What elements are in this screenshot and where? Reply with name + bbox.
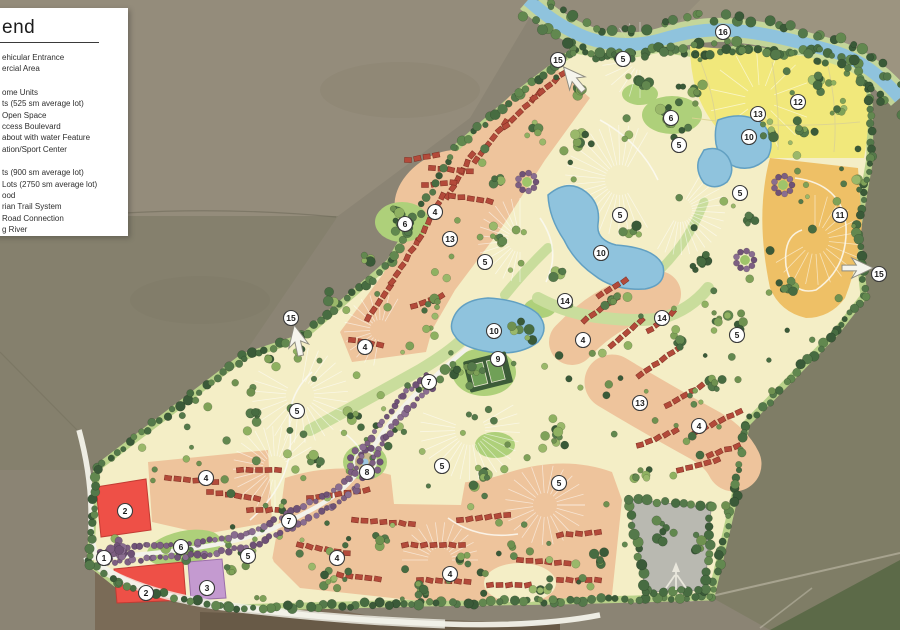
- map-marker-2: 2: [118, 504, 133, 519]
- field-mottle: [130, 276, 270, 324]
- legend-item: Lots (2750 sm average lot): [2, 179, 128, 190]
- map-marker-5: 5: [733, 186, 748, 201]
- map-marker-4: 4: [330, 551, 345, 566]
- map-marker-8: 8: [360, 465, 375, 480]
- map-marker-6: 6: [174, 540, 189, 555]
- legend-item: g River: [2, 224, 128, 235]
- site-plan-map: 1223444444455555555556667789101010111213…: [0, 0, 900, 630]
- svg-text:14: 14: [657, 313, 667, 323]
- legend-item: about with water Feature: [2, 132, 128, 143]
- svg-text:2: 2: [144, 588, 149, 598]
- map-marker-4: 4: [692, 419, 707, 434]
- svg-text:6: 6: [179, 542, 184, 552]
- svg-text:7: 7: [287, 516, 292, 526]
- map-marker-5: 5: [478, 255, 493, 270]
- map-marker-5: 5: [290, 404, 305, 419]
- legend-item: Road Connection: [2, 213, 128, 224]
- map-marker-13: 13: [443, 232, 458, 247]
- map-marker-10: 10: [594, 246, 609, 261]
- svg-text:5: 5: [621, 54, 626, 64]
- legend-title: end: [2, 17, 128, 39]
- svg-text:4: 4: [448, 569, 453, 579]
- map-marker-4: 4: [443, 567, 458, 582]
- map-marker-15: 15: [872, 267, 887, 282]
- map-marker-5: 5: [616, 52, 631, 67]
- svg-text:10: 10: [744, 132, 754, 142]
- svg-text:7: 7: [427, 377, 432, 387]
- svg-text:10: 10: [489, 326, 499, 336]
- svg-text:4: 4: [363, 342, 368, 352]
- map-marker-10: 10: [487, 324, 502, 339]
- svg-text:1: 1: [102, 553, 107, 563]
- map-marker-6: 6: [664, 111, 679, 126]
- svg-text:16: 16: [718, 27, 728, 37]
- legend-group: ome Unitsts (525 sm average lot)Open Spa…: [2, 87, 128, 155]
- svg-text:4: 4: [204, 473, 209, 483]
- svg-text:5: 5: [440, 461, 445, 471]
- legend-item: rian Trail System: [2, 201, 128, 212]
- map-marker-13: 13: [751, 107, 766, 122]
- map-marker-5: 5: [613, 208, 628, 223]
- map-marker-10: 10: [742, 130, 757, 145]
- map-marker-14: 14: [655, 311, 670, 326]
- map-marker-14: 14: [558, 294, 573, 309]
- svg-text:14: 14: [560, 296, 570, 306]
- svg-text:6: 6: [403, 219, 408, 229]
- svg-text:5: 5: [735, 330, 740, 340]
- map-marker-3: 3: [200, 581, 215, 596]
- svg-text:15: 15: [874, 269, 884, 279]
- field-mottle: [320, 62, 480, 118]
- legend-group: ehicular Entranceercial Area: [2, 52, 128, 75]
- svg-text:4: 4: [335, 553, 340, 563]
- legend-item: ts (525 sm average lot): [2, 98, 128, 109]
- map-marker-16: 16: [716, 25, 731, 40]
- svg-text:5: 5: [677, 140, 682, 150]
- svg-text:8: 8: [365, 467, 370, 477]
- svg-text:4: 4: [581, 335, 586, 345]
- svg-text:5: 5: [246, 551, 251, 561]
- map-marker-5: 5: [241, 549, 256, 564]
- svg-text:5: 5: [483, 257, 488, 267]
- map-marker-4: 4: [358, 340, 373, 355]
- svg-text:5: 5: [738, 188, 743, 198]
- map-marker-2: 2: [139, 586, 154, 601]
- map-marker-5: 5: [672, 138, 687, 153]
- svg-text:15: 15: [286, 313, 296, 323]
- legend-item: Open Space: [2, 110, 128, 121]
- map-marker-11: 11: [833, 208, 848, 223]
- map-marker-1: 1: [97, 551, 112, 566]
- pond: [698, 149, 732, 187]
- svg-text:5: 5: [618, 210, 623, 220]
- svg-text:13: 13: [753, 109, 763, 119]
- svg-text:13: 13: [445, 234, 455, 244]
- map-marker-13: 13: [633, 396, 648, 411]
- map-marker-4: 4: [428, 205, 443, 220]
- svg-text:4: 4: [697, 421, 702, 431]
- map-marker-4: 4: [199, 471, 214, 486]
- map-marker-5: 5: [435, 459, 450, 474]
- svg-text:12: 12: [793, 97, 803, 107]
- map-marker-7: 7: [282, 514, 297, 529]
- map-marker-4: 4: [576, 333, 591, 348]
- svg-text:3: 3: [205, 583, 210, 593]
- map-marker-12: 12: [791, 95, 806, 110]
- legend-item: ts (900 sm average lot): [2, 167, 128, 178]
- legend-group: ts (900 sm average lot)Lots (2750 sm ave…: [2, 167, 128, 235]
- svg-text:9: 9: [496, 354, 501, 364]
- svg-text:11: 11: [836, 210, 845, 220]
- legend-item: ation/Sport Center: [2, 144, 128, 155]
- legend-item: ccess Boulevard: [2, 121, 128, 132]
- legend-item: ood: [2, 190, 128, 201]
- legend-panel: end ehicular Entranceercial Areaome Unit…: [0, 8, 128, 236]
- svg-text:2: 2: [123, 506, 128, 516]
- svg-text:10: 10: [596, 248, 606, 258]
- svg-text:6: 6: [669, 113, 674, 123]
- map-marker-6: 6: [398, 217, 413, 232]
- map-marker-5: 5: [730, 328, 745, 343]
- masterplan-canvas: 1223444444455555555556667789101010111213…: [0, 0, 900, 630]
- map-marker-15: 15: [551, 53, 566, 68]
- map-marker-5: 5: [552, 476, 567, 491]
- map-marker-15: 15: [284, 311, 299, 326]
- legend-items: ehicular Entranceercial Areaome Unitsts …: [2, 52, 128, 236]
- svg-text:13: 13: [635, 398, 645, 408]
- svg-text:5: 5: [295, 406, 300, 416]
- svg-text:15: 15: [553, 55, 563, 65]
- legend-item: ehicular Entrance: [2, 52, 128, 63]
- legend-item: ome Units: [2, 87, 128, 98]
- legend-underline: [0, 42, 99, 43]
- map-marker-9: 9: [491, 352, 506, 367]
- svg-text:5: 5: [557, 478, 562, 488]
- map-marker-7: 7: [422, 375, 437, 390]
- svg-text:4: 4: [433, 207, 438, 217]
- legend-item: ercial Area: [2, 63, 128, 74]
